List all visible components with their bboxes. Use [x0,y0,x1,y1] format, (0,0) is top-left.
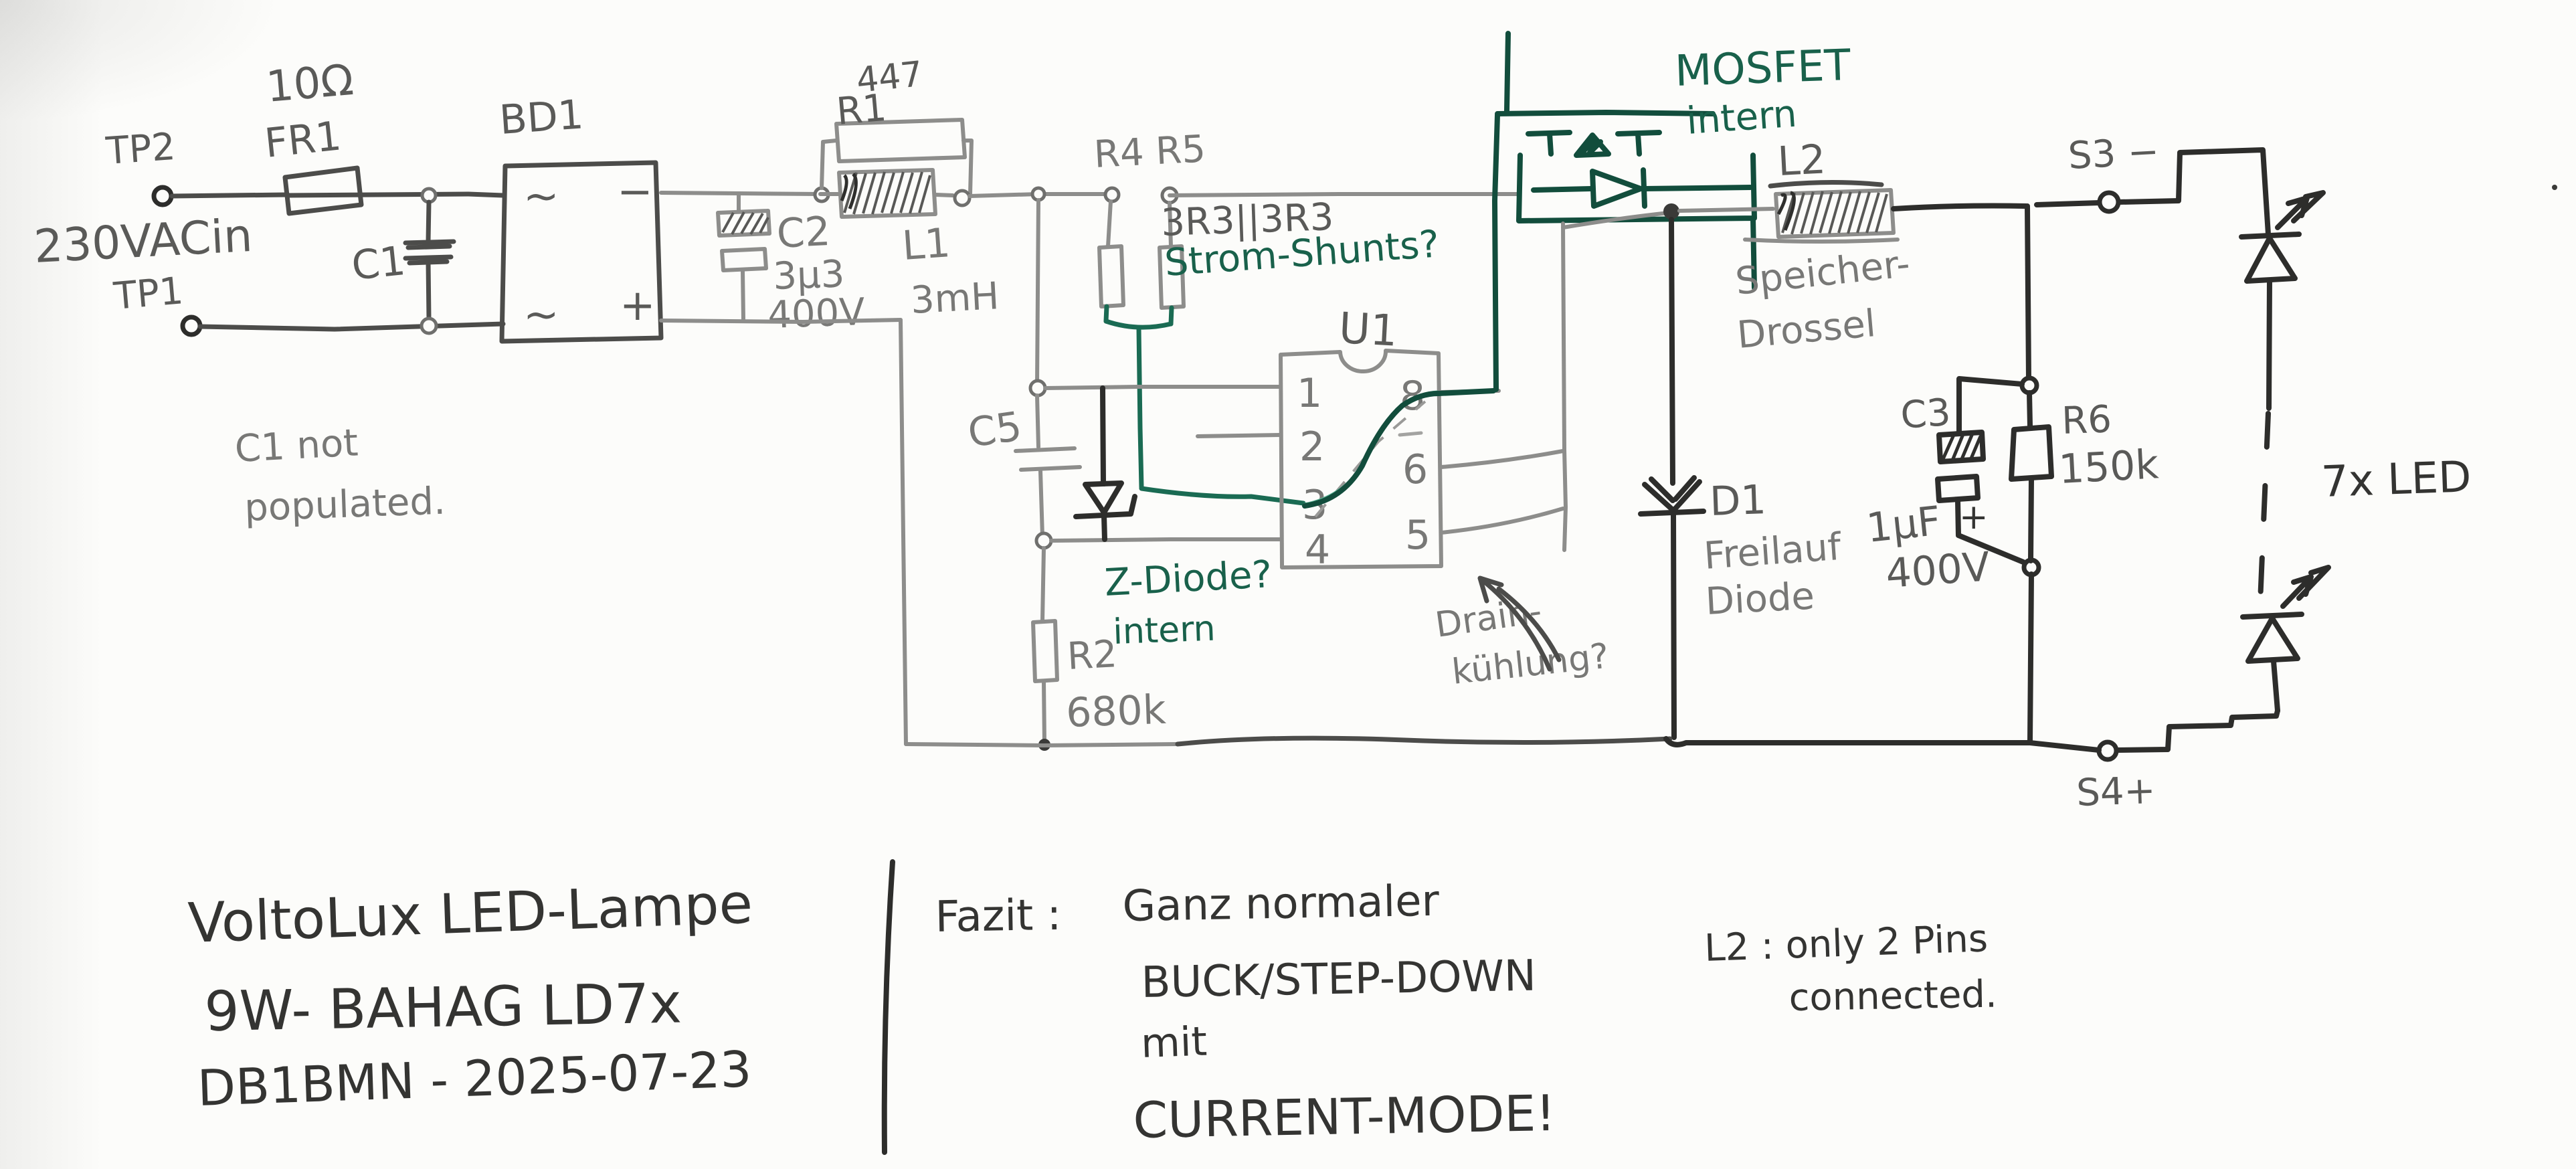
led1-triangle [2247,238,2295,281]
s4-label: S4+ [2076,769,2156,815]
led-string-dashed-gap [2260,414,2268,602]
s3-terminal [2100,193,2118,211]
r1-lead-left [822,141,836,188]
wire-fuse-to-bridge [468,194,503,195]
c1-label: C1 [349,238,407,290]
wire-tp2-to-fuse [172,195,288,196]
r5-lead-bottom [1171,308,1172,324]
l1-value-label: 3mH [909,274,1000,323]
u1-pin2: 2 [1299,424,1325,470]
zdiode-lead-top [1103,388,1103,483]
l2-pins-note-line1: L2 : only 2 Pins [1704,917,1989,970]
c3-r6-branch: + C3 R6 150k 1μF 400V [1864,206,2160,741]
r2-value-label: 680k [1065,687,1167,737]
l1-label: L1 [901,219,951,270]
mosfet-drain-stub [1528,132,1570,154]
zdiode-note-line2: intern [1112,609,1216,652]
c3-hatch [1943,434,1981,460]
c3-lead-top [1959,379,2022,432]
l2-underline [1770,182,1881,186]
l2-label: L2 [1776,136,1827,185]
wire-through-fuse [288,194,468,195]
title-line2: 9W- BAHAG LD7x [204,972,682,1044]
r4-lead-top [1108,201,1111,246]
u1-pin1: 1 [1297,370,1322,417]
hand-drawn-schematic-page: TP2 10Ω FR1 230VACin TP1 C1 C1 not popul… [0,0,2576,1169]
dc-filter-stage: C2 3μ3 400V 447 R1 L1 3mH [661,54,1109,744]
vertical-s3-to-junction [2027,206,2029,379]
fazit-label: Fazit : [935,891,1062,942]
l2-note-line1: Speicher- [1734,242,1912,304]
green-sense-to-pin3 [1141,488,1303,503]
wire-to-pin4 [1051,539,1281,541]
r6-body [2011,427,2051,479]
c2-plate-outline [722,249,766,270]
mosfet-source-stub [1618,132,1659,154]
body-diode-lead-right [1645,187,1750,189]
l2-pins-note-line2: connected. [1788,973,1997,1020]
c2-voltage-label: 400V [767,290,865,337]
mosfet-substrate-arrow [1576,135,1608,155]
r2-body [1033,621,1057,681]
junction-pin1 [1030,381,1045,395]
bridge-rectifier-bd1: BD1 ~ ~ − + [498,91,661,341]
mosfet-gate-lead [1495,115,1497,389]
u1-pin7-nc-mark [1400,433,1421,435]
l2-note-line2: Drossel [1736,302,1877,357]
zdiode-lead-bottom [1104,515,1105,539]
fazit-line2: BUCK/STEP-DOWN [1141,952,1536,1008]
fuse-value-label: 10Ω [264,56,355,112]
drain-note-line2: kühlung? [1450,636,1611,693]
mosfet-gate-bar [1497,112,1713,114]
zdiode-note-line1: Z-Diode? [1103,553,1273,605]
notes-divider-line [885,862,893,1152]
tp2-terminal [154,187,171,205]
bd1-ac-mark-top: ~ [523,172,559,221]
body-diode-lead-left [1534,189,1591,190]
rail-drop-left [901,320,906,744]
junction-pin4 [1036,533,1051,548]
ac-input-stage: TP2 10Ω FR1 230VACin TP1 C1 C1 not popul… [33,56,503,530]
zener-diode-symbol [1076,388,1135,539]
mosfet-top-stub [1507,33,1508,111]
bd1-ac-mark-bottom: ~ [523,290,559,340]
led-count-label: 7x LED [2320,452,2472,507]
wire-tp1-to-bridge [200,324,503,329]
zdiode-triangle [1085,483,1121,513]
r1-label: R1 [835,86,889,134]
r4-body [1099,246,1123,306]
bd1-minus-mark: − [617,167,653,217]
c5-label: C5 [965,403,1024,456]
c1-plate-top [405,242,454,248]
fazit-line4: CURRENT-MODE! [1133,1085,1556,1150]
c1-lead-top [428,202,429,241]
controller-stage: C5 Z-Diode? intern R2 680k U1 1 2 3 4 8 [965,200,1611,751]
fuse-body [285,168,361,213]
c2-lead-bottom [743,270,743,319]
c5-vertical-top [1037,200,1038,385]
fuse-ref-label: FR1 [262,112,343,167]
schematic-canvas: TP2 10Ω FR1 230VACin TP1 C1 C1 not popul… [0,0,2576,1169]
c5-lead-top [1037,395,1038,447]
junction-r4 [1105,188,1119,201]
title-line3: DB1BMN - 2025-07-23 [197,1041,753,1117]
rail-to-s3-terminal [2037,203,2100,205]
u1-pin5: 5 [1405,512,1431,559]
fazit-line3: mit [1140,1018,1208,1067]
source-vertical [1563,223,1566,550]
inductor-l2: L2 [1745,136,1898,242]
tp1-terminal [183,317,200,335]
junction-l1-right [955,191,970,205]
ac-source-label: 230VACin [33,209,254,274]
u1-pin4: 4 [1305,527,1330,573]
l2-base-line [1745,240,1898,242]
body-diode-triangle [1592,171,1641,206]
bus-right [1666,739,2099,750]
d1-lead-top [1671,219,1673,483]
c2-label: C2 [775,208,832,258]
led2-lead-down [2274,661,2278,711]
c3-label: C3 [1899,391,1952,438]
paper-speck [2552,185,2557,190]
r6-lead-top [2029,393,2030,426]
c2-hatch [723,212,768,234]
notes-block: VoltoLux LED-Lampe 9W- BAHAG LD7x DB1BMN… [187,862,1997,1152]
r2-lead-bottom [1044,681,1044,743]
led-1 [2241,193,2323,408]
shunt-refs-label: R4 R5 [1093,127,1206,177]
c1-note-line2: populated. [244,480,446,530]
l1-winding-scribble [844,172,930,214]
capacitor-c2 [718,193,769,319]
c3-value-label: 1μF [1864,498,1943,552]
c5-lead-bottom [1040,471,1042,537]
l2-winding-scribble [1782,191,1887,234]
r6-lead-bottom [2031,479,2031,561]
bd1-label: BD1 [498,91,585,144]
c5-plate-bottom [1021,467,1080,470]
ic-u1: U1 1 2 3 4 8 6 5 [1281,304,1441,573]
c3-voltage-label: 400V [1884,543,1991,598]
led2-light-arrows [2283,567,2328,606]
d1-note-line2: Diode [1704,575,1815,624]
led1-lead-down [2269,281,2270,408]
wire-led2-to-s4 [2117,711,2278,750]
wire-to-pin1 [1045,387,1281,388]
r2-lead-top [1042,548,1044,621]
led-2 [2243,567,2328,711]
u1-label: U1 [1338,304,1398,356]
pin6-wire [1441,451,1563,467]
c1-note-line1: C1 not [234,421,359,471]
s3-label: S3 − [2067,130,2160,178]
title-line1: VoltoLux LED-Lampe [187,873,753,956]
d1-note-line1: Freilauf [1702,525,1843,578]
fazit-line1: Ganz normaler [1122,877,1440,931]
d1-lead-bottom [1673,514,1674,737]
d1-label: D1 [1709,476,1767,525]
bd1-plus-mark: + [620,281,656,331]
rail-l2-to-s3 [1894,206,2026,209]
r6-label: R6 [2061,397,2112,443]
junction-c1-bottom [422,319,436,333]
c3-plus-mark: + [1959,497,1989,537]
led-string: 7x LED S4+ [2076,193,2472,815]
capacitor-c1 [405,189,454,333]
s4-terminal [2099,742,2116,759]
mosfet-package-box [1519,155,1754,288]
rail-d1-to-l2 [1679,209,1773,211]
r6-value-label: 150k [2057,441,2160,493]
bottom-bus [906,738,2099,750]
vertical-junction-to-bus [2030,574,2031,741]
inductor-l1 [839,170,935,217]
output-stage: L2 Speicher- Drossel D1 Freilauf Diode [1563,130,2268,741]
fuse-fr1-symbol [285,168,468,213]
c1-lead-bottom [428,262,429,319]
r2-label: R2 [1066,632,1118,679]
u1-pin6: 6 [1402,446,1428,493]
bus-left [906,744,1178,745]
led1-light-arrows [2278,193,2323,228]
pin5-wire [1441,509,1563,533]
mosfet-note-line1: MOSFET [1674,41,1852,96]
tp1-label: TP1 [112,269,185,319]
bus-mid [1178,738,1670,744]
mosfet-body-diode [1534,170,1750,206]
mosfet-note-line2: intern [1685,92,1798,143]
rail-bridge-plus [661,320,901,322]
led2-triangle [2248,618,2298,661]
rail-shunts-to-mosfet [1170,194,1517,195]
pin2-stub [1198,435,1281,436]
tp2-label: TP2 [104,125,177,173]
pin8-wire-green [1439,391,1493,393]
green-sense-drop [1139,328,1141,487]
